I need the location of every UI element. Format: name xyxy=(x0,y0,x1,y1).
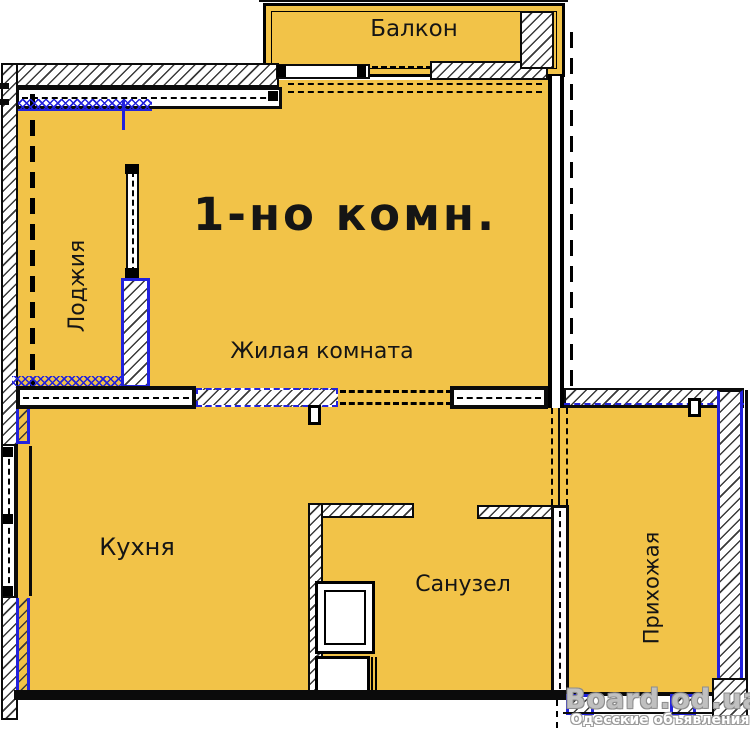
blue-tee-marker xyxy=(122,100,125,130)
living-room-label: Жилая комната xyxy=(172,339,472,364)
left-wall-blue-segment xyxy=(16,406,30,444)
bottom-dash xyxy=(556,700,558,728)
under-balcony-dash xyxy=(288,91,542,93)
hallway-label: Прихожая xyxy=(640,516,666,661)
balcony-top-edge-line xyxy=(259,0,568,2)
wall-stub xyxy=(308,405,321,425)
loggia-label: Лоджия xyxy=(65,226,91,346)
balcony-door-window xyxy=(276,64,370,79)
bathroom-hallway-wall xyxy=(551,505,569,695)
hallway-right-wall xyxy=(717,390,743,712)
mid-opening-dash xyxy=(340,390,452,393)
window-end-marker xyxy=(277,65,286,77)
hall-door-dash xyxy=(551,408,553,505)
bathroom-wall-arm xyxy=(477,505,553,519)
mid-wall-window-left xyxy=(16,386,196,409)
floor-plan: Балкон 1-но комн. Жилая комната Лоджия К… xyxy=(0,0,750,742)
mid-wall-window-right xyxy=(450,386,548,409)
loggia-glazing-line xyxy=(30,94,35,392)
hallway-right-outer-line xyxy=(745,390,748,712)
window-end-marker xyxy=(3,586,13,596)
shaft-double-line xyxy=(371,657,377,694)
window-end-marker xyxy=(357,65,366,77)
loggia-partition-wall xyxy=(121,278,150,388)
loggia-window xyxy=(126,166,139,278)
insulation-strip xyxy=(18,99,152,111)
plan-title: 1-но комн. xyxy=(145,188,545,241)
balcony-label: Балкон xyxy=(263,16,565,42)
window-end-marker xyxy=(3,447,13,457)
living-room-right-wall xyxy=(548,76,564,408)
ventilation-shaft xyxy=(315,581,375,654)
window-end-marker xyxy=(268,91,278,101)
watermark-site: Board.od.ua xyxy=(565,684,750,715)
bottom-wall xyxy=(14,690,566,700)
wall-tick xyxy=(0,83,9,89)
wall-stub xyxy=(688,398,701,417)
kitchen-bath-wall-arm xyxy=(308,503,414,518)
kitchen-wall-inner-line xyxy=(29,446,32,596)
hall-door-centerline xyxy=(558,408,560,505)
balcony-opening-dash xyxy=(372,74,432,77)
under-balcony-dash xyxy=(288,83,542,85)
bathroom-label: Санузел xyxy=(383,572,543,597)
left-wall-blue-segment xyxy=(16,598,30,692)
window-end-marker xyxy=(125,268,139,278)
window-mid-marker xyxy=(3,514,13,524)
ventilation-shaft xyxy=(315,656,370,694)
watermark-tagline: Одесские объявления xyxy=(570,712,750,728)
kitchen-label: Кухня xyxy=(57,533,217,561)
wall-tick xyxy=(0,99,9,105)
balcony-opening-dash xyxy=(372,66,432,69)
hall-door-dash xyxy=(566,408,568,505)
building-edge-dash xyxy=(570,32,573,400)
window-end-marker xyxy=(125,164,139,174)
mid-opening-dash xyxy=(340,402,452,405)
top-outer-wall xyxy=(3,63,279,87)
